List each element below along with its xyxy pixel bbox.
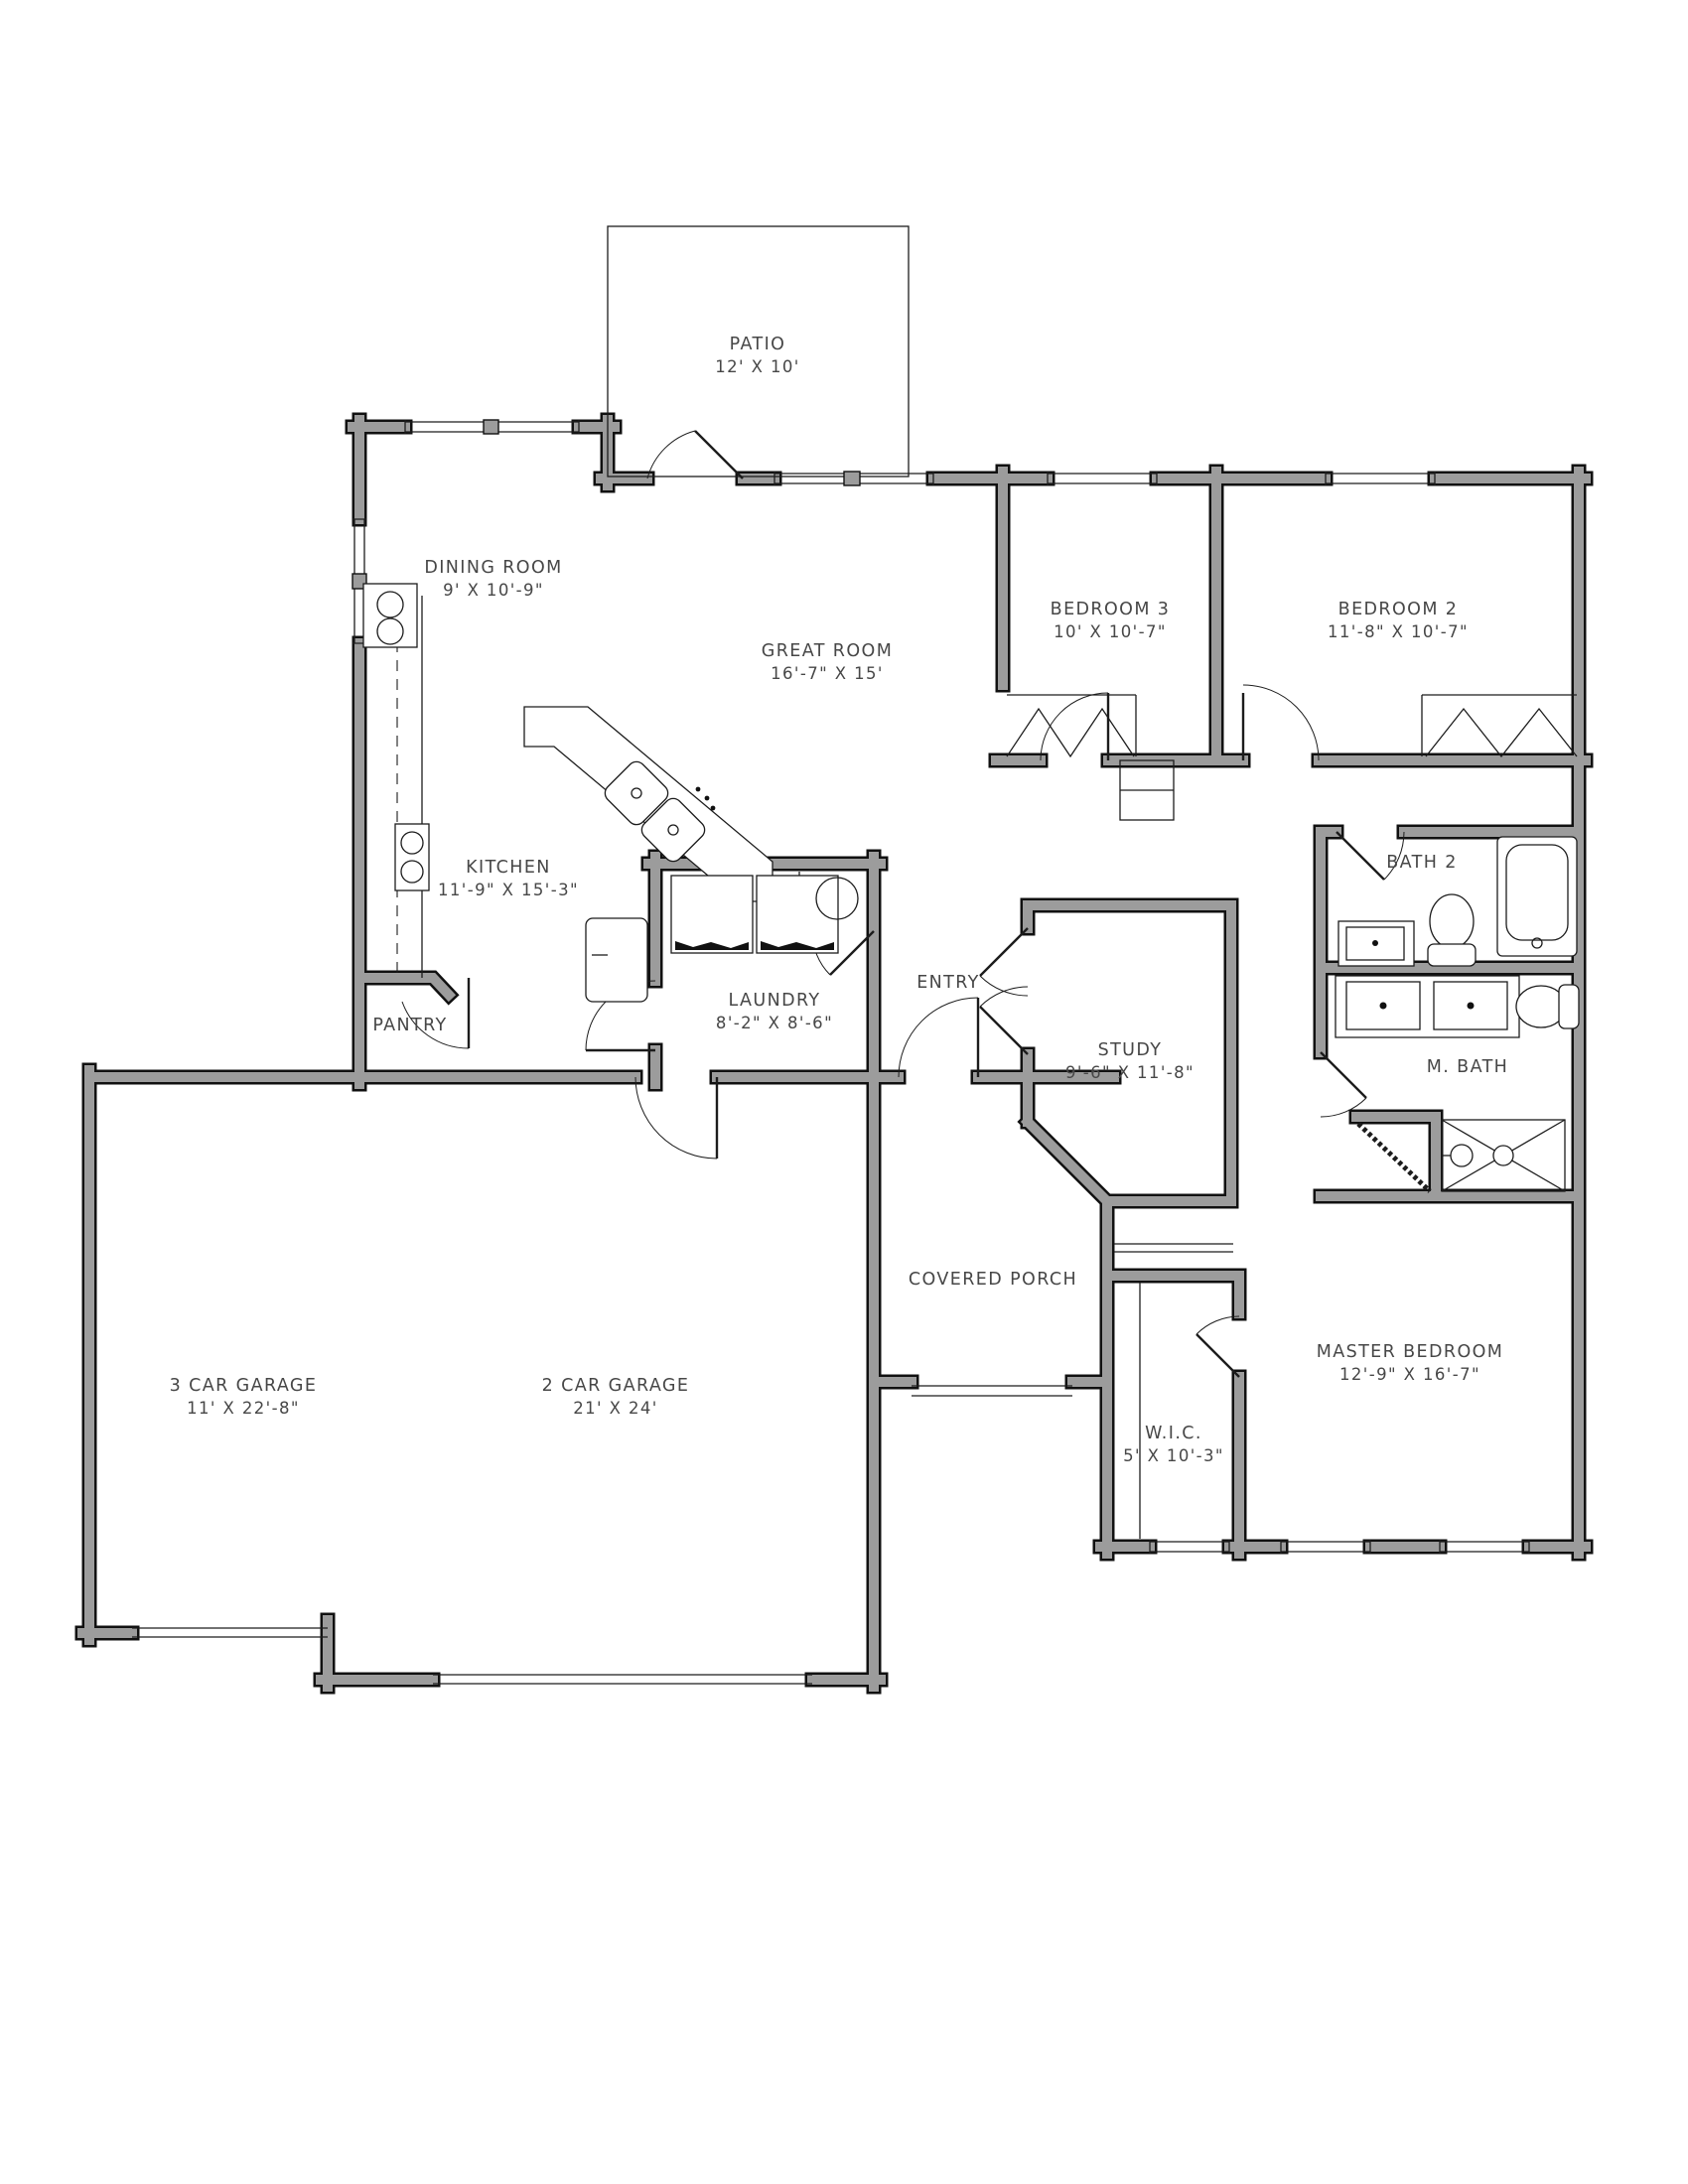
- label-great-name: GREAT ROOM: [762, 641, 893, 661]
- label-bath2-name: BATH 2: [1386, 853, 1458, 873]
- shower: [1442, 1120, 1565, 1191]
- shower-head: [1451, 1145, 1473, 1166]
- label-bed2-dims: 11'-8" X 10'-7": [1328, 622, 1469, 641]
- washer: [671, 876, 753, 953]
- floor-plan-canvas: PATIO 12' X 10' DINING ROOM 9' X 10'-9" …: [0, 0, 1688, 2184]
- label-wic-dims: 5' X 10'-3": [1123, 1446, 1224, 1465]
- label-laundry-dims: 8'-2" X 8'-6": [716, 1014, 833, 1032]
- window-mullion: [844, 472, 860, 485]
- label-garage2-name: 2 CAR GARAGE: [542, 1376, 690, 1396]
- label-dining-name: DINING ROOM: [424, 558, 562, 578]
- label-porch-name: COVERED PORCH: [909, 1270, 1077, 1290]
- label-garage3-dims: 11' X 22'-8": [187, 1399, 300, 1418]
- wall-oven: [363, 584, 417, 647]
- label-mbath-name: M. BATH: [1427, 1057, 1509, 1077]
- refrigerator: [586, 918, 647, 1002]
- dryer: [757, 876, 838, 953]
- mbath-fixtures: [1336, 976, 1579, 1191]
- toilet: [1430, 894, 1474, 948]
- shower-glass: [1358, 1124, 1430, 1191]
- garage-door-small: [132, 1628, 328, 1637]
- porch-step: [912, 1386, 1072, 1396]
- label-entry-name: ENTRY: [916, 973, 980, 993]
- label-kitchen-name: KITCHEN: [466, 858, 551, 878]
- label-patio-name: PATIO: [730, 335, 786, 354]
- porch-details: [912, 1386, 1072, 1396]
- label-master-dims: 12'-9" X 16'-7": [1339, 1365, 1480, 1384]
- label-wic-name: W.I.C.: [1145, 1424, 1202, 1443]
- floor-plan-page: PATIO 12' X 10' DINING ROOM 9' X 10'-9" …: [0, 0, 1688, 2184]
- label-garage3-name: 3 CAR GARAGE: [170, 1376, 318, 1396]
- label-study-dims: 9'-6" X 11'-8": [1065, 1063, 1195, 1082]
- room-labels: PATIO 12' X 10' DINING ROOM 9' X 10'-9" …: [170, 335, 1509, 1465]
- label-study-name: STUDY: [1098, 1040, 1163, 1060]
- label-bed3-dims: 10' X 10'-7": [1054, 622, 1167, 641]
- label-master-name: MASTER BEDROOM: [1317, 1342, 1504, 1362]
- label-laundry-name: LAUNDRY: [728, 991, 820, 1011]
- bath2-fixtures: [1338, 837, 1577, 966]
- label-great-dims: 16'-7" X 15': [771, 664, 884, 683]
- label-pantry-name: PANTRY: [372, 1016, 447, 1035]
- label-patio-dims: 12' X 10': [715, 357, 799, 376]
- bifold-door: [1007, 709, 1134, 756]
- window-mullion: [484, 420, 498, 434]
- label-dining-dims: 9' X 10'-9": [443, 581, 544, 600]
- label-bed3-name: BEDROOM 3: [1051, 600, 1171, 619]
- garage-door-large: [433, 1675, 812, 1684]
- cooktop: [395, 824, 429, 890]
- laundry-fixtures: [671, 876, 858, 953]
- label-bed2-name: BEDROOM 2: [1338, 600, 1459, 619]
- label-garage2-dims: 21' X 24': [573, 1399, 657, 1418]
- label-kitchen-dims: 11'-9" X 15'-3": [438, 881, 579, 899]
- closets: [799, 695, 1577, 1539]
- bifold-door: [1426, 709, 1577, 756]
